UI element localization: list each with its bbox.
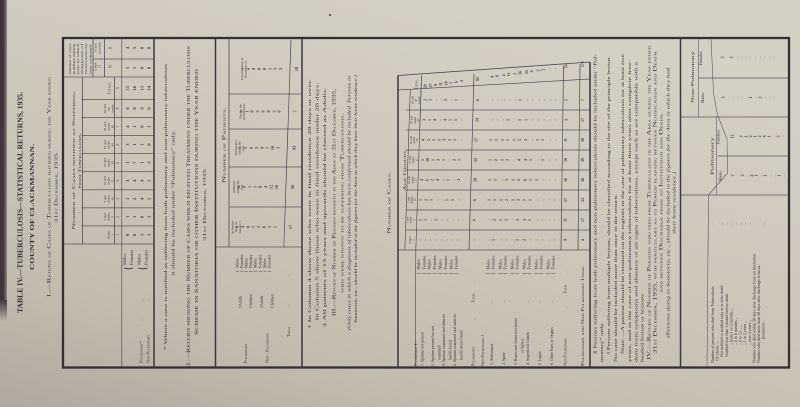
svg-text:...: ... [547,179,551,182]
svg-text:Total: Total [471,293,476,303]
svg-text:Non - Pulmonary: Non - Pulmonary [265,332,270,363]
svg-text:2. Sputum present but not: 2. Sputum present but not [431,325,435,366]
svg-text:...: ... [417,239,421,242]
svg-text:1: 1 [431,139,436,141]
svg-text:2: 2 [451,159,456,161]
svg-text:10: 10 [270,146,275,150]
svg-text:...: ... [490,300,494,303]
svg-text:0: 0 [262,68,267,70]
svg-text:bacilli never found: bacilli never found [459,331,463,360]
svg-text:4. Sputum examined and tubercl: 4. Sputum examined and tubercle [453,314,457,366]
svg-text:2: 2 [422,99,427,101]
svg-text:5: 5 [111,216,115,218]
svg-text:3: 3 [442,139,447,141]
svg-text:2: 2 [515,219,520,221]
svg-text:3. Bones and Joints (exclusiv: 3. Bones and Joints (exclusive [514,318,518,365]
svg-text:...: ... [423,239,427,242]
svg-text:Males: Males [533,259,538,270]
svg-text:7: 7 [238,147,243,149]
svg-text:1: 1 [754,174,759,176]
svg-text:...: ... [781,135,785,138]
svg-text:1: 1 [265,147,270,149]
svg-text:2: 2 [757,96,762,98]
svg-text:1: 1 [515,239,520,241]
svg-text:Number of Cases notified as Su: Number of Cases notified as Suffering [71,90,76,230]
svg-text:...: ... [434,99,438,102]
svg-text:4: 4 [432,119,437,121]
svg-text:...: ... [507,99,511,102]
svg-text:2: 2 [254,147,259,149]
svg-text:2: 2 [541,69,546,71]
svg-text:25: 25 [414,158,418,162]
svg-text:17: 17 [580,218,585,222]
svg-text:3: 3 [276,147,281,149]
svg-text:1: 1 [498,219,503,221]
svg-text:1: 1 [511,139,516,141]
svg-text:...: ... [459,119,463,122]
svg-text:Males: Males [427,259,432,270]
svg-text:it should be included under “P: it should be included under “Pulmonary” … [171,130,176,276]
svg-text:5: 5 [116,162,120,164]
svg-text:5: 5 [239,110,244,112]
svg-text:0: 0 [277,110,282,112]
svg-text:Males: Males [448,259,453,270]
svg-text:6: 6 [472,199,477,201]
svg-text:...: ... [472,239,476,242]
svg-text:2: 2 [517,139,522,141]
svg-text:1: 1 [540,139,545,141]
svg-text:28: 28 [580,138,585,142]
svg-text:1: 1 [498,199,503,201]
svg-text:20: 20 [423,84,428,88]
svg-text:92: 92 [475,77,480,81]
svg-text:...: ... [530,119,534,122]
svg-text:Number who died more than 28 d: Number who died more than 28 days after … [756,266,761,363]
svg-text:1: 1 [452,139,457,141]
svg-text:...: ... [530,99,534,102]
svg-text:2: 2 [443,99,448,101]
svg-text:...: ... [286,274,291,277]
svg-text:1: 1 [272,226,277,228]
svg-text:11: 11 [563,218,568,222]
svg-text:(Only cases in which a diagnos: (Only cases in which a diagnosis of tube… [347,76,352,330]
svg-text:...: ... [460,99,464,102]
svg-text:‡Adults: ‡Adults [260,295,264,308]
svg-text:1: 1 [777,174,782,176]
svg-text:Number of Patients.: Number of Patients. [223,107,228,183]
svg-text:Pulmonary §: Pulmonary § [413,343,418,366]
svg-text:1: 1 [428,99,433,101]
svg-text:6. Other Parts or Organs: 6. Other Parts or Organs [550,327,554,365]
svg-text:1: 1 [492,179,497,181]
svg-text:1: 1 [527,219,532,221]
svg-text:up-wards: up-wards [98,42,102,54]
svg-text:TABLE IV.—TUBERCULOSIS—STATIST: TABLE IV.—TUBERCULOSIS—STATISTICAL RETUR… [16,92,25,313]
svg-text:...: ... [548,119,552,122]
svg-text:4. Superficial Glands: 4. Superficial Glands [526,332,530,365]
svg-text:...: ... [757,56,761,59]
svg-text:...: ... [552,239,556,242]
svg-text:1: 1 [252,186,257,188]
svg-text:23: 23 [473,158,478,162]
svg-text:COUNTY OF CLACKMANNAN.: COUNTY OF CLACKMANNAN. [29,144,36,270]
svg-text:16: 16 [132,85,137,90]
svg-text:1: 1 [527,199,532,201]
svg-text:...: ... [771,56,775,59]
svg-text:...: ... [525,99,529,102]
svg-text:15: 15 [111,179,115,183]
svg-text:...: ... [734,56,738,59]
svg-text:3: 3 [436,159,441,161]
svg-text:1: 1 [247,186,252,188]
svg-text:2: 2 [423,219,428,221]
svg-text:...: ... [725,222,729,225]
svg-text:16: 16 [563,178,568,182]
svg-text:1: 1 [517,119,522,121]
svg-text:...: ... [739,56,743,59]
svg-text:* Where a case is notified as: * Where a case is notified as suffering … [163,63,168,350]
svg-text:...: ... [450,219,454,222]
svg-text:...: ... [731,96,735,99]
svg-text:1: 1 [505,119,510,121]
svg-text:...: ... [139,299,144,302]
svg-text:...: ... [743,222,747,225]
svg-text:1: 1 [454,99,459,101]
svg-text:4: 4 [435,179,440,181]
svg-text:4: 4 [459,80,464,82]
svg-text:4: 4 [563,239,568,241]
svg-text:Females: Females [515,255,520,269]
svg-text:79: 79 [563,65,568,69]
svg-text:monary” only.: monary” only. [599,322,604,362]
svg-text:Females: Females [421,255,426,269]
svg-text:8: 8 [235,226,240,228]
svg-text:171: 171 [580,61,585,67]
svg-text:No case should be included mor: No case should be included more than onc… [613,194,618,362]
svg-text:65: 65 [111,125,115,129]
svg-text:...: ... [547,199,551,202]
svg-text:...: ... [729,222,733,225]
svg-text:who were known to be suffering: who were known to be suffering from Tube… [341,113,346,293]
svg-text:...: ... [526,300,530,303]
svg-text:Non-Pulmonary: Non-Pulmonary [690,50,695,103]
svg-text:...: ... [444,239,448,242]
svg-text:...: ... [546,239,550,242]
svg-text:Females: Females [503,255,508,269]
svg-text:...: ... [490,99,494,102]
svg-text:1: 1 [763,174,768,176]
svg-text:3: 3 [721,96,726,98]
svg-text:1: 1 [417,219,422,221]
svg-text:...: ... [528,239,532,242]
svg-text:Pulmonary: Pulmonary [710,135,715,175]
svg-text:3: 3 [563,119,568,121]
svg-text:...: ... [767,56,771,59]
svg-text:II.—Return showing the Number: II.—Return showing the Number of Cases w… [186,46,192,368]
svg-text:2: 2 [504,199,509,201]
svg-text:13: 13 [125,85,130,90]
svg-text:{: { [123,266,134,271]
svg-text:2: 2 [505,159,510,161]
svg-text:healed lesion or lesions.: healed lesion or lesions. [640,292,645,362]
svg-text:0: 0 [251,68,256,70]
svg-text:...: ... [762,56,766,59]
svg-text:Males: Males [545,259,550,270]
svg-text:Males: Males [509,259,514,270]
svg-text:Females: Females [454,255,459,269]
svg-text:...: ... [720,222,724,225]
svg-text:1: 1 [488,159,493,161]
svg-text:...: ... [772,96,776,99]
svg-text:4: 4 [580,239,585,241]
svg-text:...: ... [734,222,738,225]
svg-text:Total: Total [286,326,291,337]
svg-text:of Spine): of Spine) [520,338,524,353]
svg-text:0: 0 [262,226,267,228]
svg-text:1: 1 [500,139,505,141]
svg-text:Males: Males [438,259,443,270]
svg-text:10: 10 [109,65,113,69]
svg-text:12: 12 [730,134,735,138]
svg-text:9: 9 [242,186,247,188]
svg-text:Pulmonary: Pulmonary [471,346,476,366]
svg-text:...: ... [552,219,556,222]
svg-text:5: 5 [243,147,248,149]
svg-text:...: ... [433,239,437,242]
svg-text:4: 4 [419,179,424,181]
svg-text:1: 1 [430,159,435,161]
svg-text:...: ... [499,239,503,242]
svg-text:Institution: Institution [761,323,766,339]
svg-text:2: 2 [729,56,734,58]
svg-text:8: 8 [116,107,120,109]
svg-text:1: 1 [453,119,458,121]
svg-text:1: 1 [429,199,434,201]
svg-text:1: 1 [535,139,540,141]
svg-text:11: 11 [506,73,511,77]
svg-text:1: 1 [251,226,256,228]
svg-text:...: ... [744,56,748,59]
svg-text:...: ... [553,67,557,70]
svg-text:...: ... [739,222,743,225]
svg-text:their home residence.): their home residence.) [672,171,677,234]
svg-text:Males.: Males. [700,92,705,103]
svg-text:...: ... [763,96,767,99]
svg-text:6: 6 [475,99,480,101]
svg-text:7: 7 [240,68,245,70]
svg-text:...: ... [440,219,444,222]
svg-text:...: ... [146,299,151,302]
svg-text:5: 5 [420,159,425,161]
svg-text:...: ... [748,56,752,59]
svg-text:...: ... [458,139,462,142]
svg-text:Non Pulmonary: Non Pulmonary [563,337,568,366]
svg-text:1: 1 [457,159,462,161]
svg-text:3. Sputum examined and tubercl: 3. Sputum examined and tubercle [442,314,446,366]
svg-text:...: ... [768,96,772,99]
svg-text:39: 39 [580,158,585,162]
svg-text:1: 1 [534,179,539,181]
svg-text:...: ... [748,222,752,225]
svg-text:4: 4 [116,180,120,182]
svg-text:1: 1 [116,234,120,236]
svg-text:...: ... [504,239,508,242]
svg-text:15: 15 [414,178,418,182]
svg-text:...: ... [541,179,545,182]
svg-text:...: ... [536,119,540,122]
svg-text:Non Pulmonary. ‖: Non Pulmonary. ‖ [480,335,485,366]
svg-text:3: 3 [456,179,461,181]
svg-text:1: 1 [499,159,504,161]
svg-text:Non Pulmonary: Non Pulmonary [146,334,151,363]
svg-text:1: 1 [488,139,493,141]
svg-text:3: 3 [516,199,521,201]
svg-text:Females: Females [129,249,134,265]
svg-text:...: ... [445,219,449,222]
svg-text:1: 1 [528,159,533,161]
svg-text:1: 1 [517,99,522,101]
svg-text:...: ... [563,306,568,309]
svg-text:9: 9 [259,147,264,149]
svg-text:1: 1 [441,159,446,161]
svg-text:IV.—Return of Number of Person: IV.—Return of Number of Persons who died… [648,44,653,359]
svg-text:3: 3 [421,119,426,121]
svg-text:‡ All patients of 15 years and: ‡ All patients of 15 years and upwards s… [322,87,327,327]
svg-text:...: ... [534,239,538,242]
svg-text:11: 11 [109,46,113,50]
svg-text:...: ... [450,239,454,242]
svg-text:Males: Males [521,259,526,270]
svg-text:...: ... [439,239,443,242]
svg-text:...: ... [740,96,744,99]
svg-text:2: 2 [521,239,526,241]
svg-text:...: ... [541,119,545,122]
svg-text:2: 2 [720,56,725,58]
svg-text:6: 6 [116,144,120,146]
svg-text:1: 1 [267,68,272,70]
svg-text:31st December, 1935, with part: 31st December, 1935, with particulars as… [654,50,659,353]
svg-text:7: 7 [580,99,585,101]
svg-text:1: 1 [487,199,492,201]
svg-text:1: 1 [491,239,496,241]
svg-text:10: 10 [274,185,279,189]
svg-text:1: 1 [244,110,249,112]
svg-text:...: ... [428,239,432,242]
svg-text:Females: Females [144,249,149,265]
svg-text:Note.—A patient should be reta: Note.—A patient should be retained on th… [620,54,625,354]
svg-text:5. Lupus: 5. Lupus [538,351,542,365]
svg-text:Children: Children [271,294,275,308]
svg-text:0: 0 [261,110,266,112]
svg-text:14: 14 [147,85,152,90]
svg-text:...: ... [547,159,551,162]
svg-text:Males: Males [485,259,490,270]
svg-text:§ Persons suffering from both: § Persons suffering from both pulmonary … [593,53,598,354]
svg-text:...: ... [455,239,459,242]
svg-text:...: ... [550,300,554,303]
svg-text:{: { [137,266,148,271]
svg-text:3: 3 [522,219,527,221]
svg-text:Females: Females [443,255,448,269]
svg-text:...: ... [762,222,766,225]
svg-text:and between Discharge from an: and between Discharge from an Institutio… [660,113,665,293]
svg-text:...: ... [471,280,476,283]
svg-text:8: 8 [258,186,263,188]
svg-text:17: 17 [580,118,585,122]
svg-text:9: 9 [116,87,120,89]
svg-text:...: ... [711,222,715,225]
svg-text:...: ... [540,219,544,222]
svg-text:...: ... [553,139,557,142]
svg-text:...: ... [536,99,540,102]
svg-text:10: 10 [413,198,417,202]
svg-text:1: 1 [111,234,115,236]
svg-text:1: 1 [766,135,771,137]
svg-text:7: 7 [522,199,527,201]
svg-text:I.—Return of Cases of Tubercul: I.—Return of Cases of Tuberculosis notif… [48,76,53,297]
svg-text:45: 45 [415,138,419,142]
svg-text:...: ... [548,99,552,102]
svg-text:Pulmonary: Pulmonary [243,343,248,363]
svg-text:3: 3 [273,68,278,70]
svg-text:12: 12 [269,185,274,189]
svg-text:65: 65 [416,118,420,122]
svg-text:4: 4 [516,159,521,161]
svg-text:1. Abdominal: 1. Abdominal [490,344,494,365]
svg-text:1: 1 [445,199,450,201]
svg-text:...: ... [553,99,557,102]
svg-text:Scheme in Sanatoria or other I: Scheme in Sanatoria or other Institution… [194,69,200,335]
svg-text:0: 0 [250,110,255,112]
svg-text:1: 1 [436,139,441,141]
svg-text:...: ... [563,271,568,274]
svg-text:...: ... [535,219,539,222]
svg-text:1: 1 [523,119,528,121]
svg-text:...: ... [456,199,460,202]
svg-text:2: 2 [271,110,276,112]
svg-text:...: ... [529,139,533,142]
svg-text:from Tuberculosis.: from Tuberculosis. [77,133,82,189]
svg-text:16: 16 [563,158,568,162]
svg-text:Females: Females [491,255,496,269]
svg-text:1: 1 [540,159,545,161]
svg-text:1: 1 [748,96,753,98]
svg-text:2: 2 [740,174,745,176]
svg-text:...: ... [495,99,499,102]
svg-text:3: 3 [504,179,509,181]
svg-text:2: 2 [116,216,120,218]
svg-text:4: 4 [529,70,534,72]
svg-text:17: 17 [474,138,479,142]
svg-text:† In Column 4 show those who w: † In Column 4 show those who were in fin… [307,79,312,329]
svg-text:1: 1 [418,199,423,201]
svg-text:1: 1 [487,179,492,181]
svg-text:...: ... [502,99,506,102]
svg-text:8: 8 [494,75,499,77]
svg-text:...: ... [547,219,551,222]
svg-text:...: ... [456,219,460,222]
svg-text:Males: Males [416,259,421,270]
svg-text:17: 17 [563,198,568,202]
svg-text:Females.: Females. [698,50,703,65]
svg-text:2: 2 [278,68,283,70]
svg-text:III.—Return of Number of Perso: III.—Return of Number of Persons residen… [333,89,338,316]
svg-text:1: 1 [445,179,450,181]
svg-text:...: ... [768,174,772,177]
svg-text:1: 1 [450,199,455,201]
svg-text:1: 1 [493,139,498,141]
svg-text:...: ... [495,119,499,122]
